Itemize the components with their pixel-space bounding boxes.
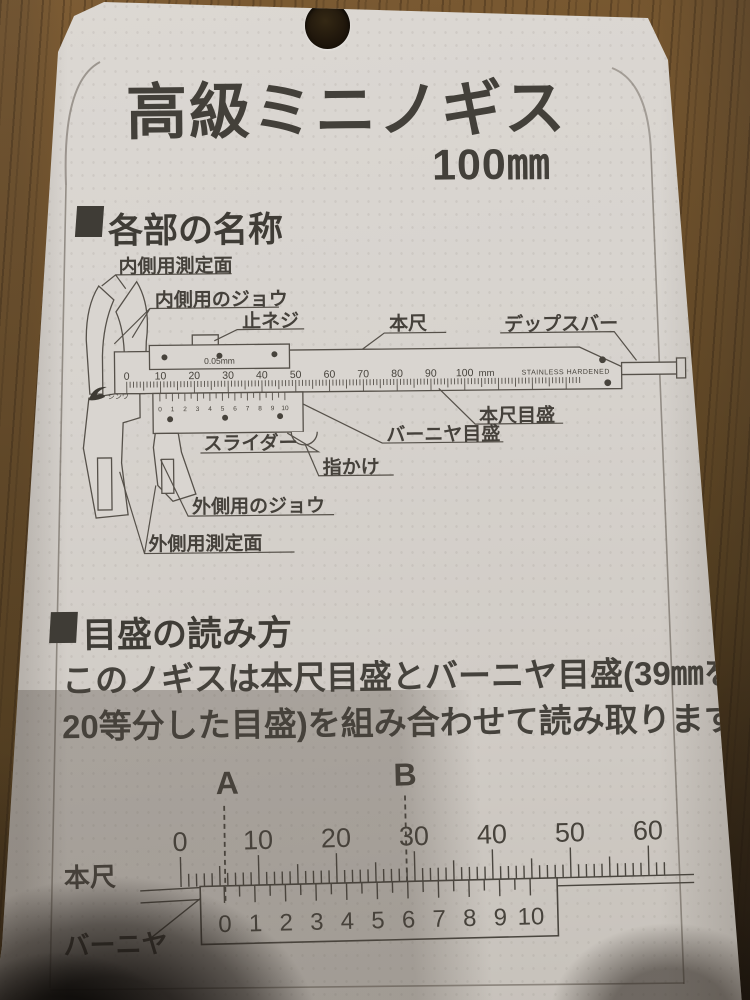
label-vernier-scale-bottom: バーニヤ xyxy=(63,923,168,963)
svg-text:8: 8 xyxy=(258,405,262,412)
depth-bar xyxy=(622,362,682,375)
svg-text:30: 30 xyxy=(222,370,234,382)
svg-text:0: 0 xyxy=(158,406,162,413)
label-slider: スライダー xyxy=(203,428,298,456)
svg-text:10: 10 xyxy=(281,405,289,412)
inner-jaw-fixed xyxy=(86,286,115,394)
svg-text:60: 60 xyxy=(633,815,664,846)
reading-body-line2: 20等分した目盛)を組み合わせて読み取ります。 xyxy=(62,692,750,749)
label-main-scale: 本尺 xyxy=(63,857,116,895)
label-inner-face: 内側用測定面 xyxy=(118,251,232,279)
hang-hole xyxy=(305,2,350,49)
precision-text: 0.05mm xyxy=(204,356,235,366)
stainless-text: STAINLESS HARDENED xyxy=(522,369,610,377)
main-scale-numbers: 0102030405060 xyxy=(172,815,663,857)
svg-text:50: 50 xyxy=(555,817,586,848)
svg-text:10: 10 xyxy=(243,825,274,856)
svg-text:1: 1 xyxy=(249,910,263,937)
svg-text:4: 4 xyxy=(208,406,212,413)
marker-b: B xyxy=(393,756,417,793)
svg-text:9: 9 xyxy=(271,405,275,412)
label-finger-rest: 指かけ xyxy=(322,452,379,480)
vernier-scale-bottom: 012345678910 xyxy=(217,878,544,938)
svg-text:6: 6 xyxy=(233,406,237,413)
label-outer-face: 外側用測定面 xyxy=(148,528,262,556)
svg-text:40: 40 xyxy=(256,369,268,381)
svg-text:60: 60 xyxy=(324,369,336,381)
depth-bar-tip xyxy=(676,358,685,378)
svg-text:7: 7 xyxy=(246,405,250,412)
svg-text:9: 9 xyxy=(493,904,507,931)
svg-text:100: 100 xyxy=(456,367,474,379)
svg-text:90: 90 xyxy=(425,368,437,380)
package-card: 高級ミニノギス 100㎜ 各部の名称 xyxy=(0,0,750,1000)
svg-text:2: 2 xyxy=(279,909,293,936)
svg-text:50: 50 xyxy=(290,369,302,381)
scale-reading-diagram: A B 0102030405060 012345678910 本 xyxy=(57,750,713,1000)
svg-text:6: 6 xyxy=(402,906,416,933)
section-bullet xyxy=(49,612,78,643)
svg-text:0: 0 xyxy=(172,827,188,857)
section-bullet xyxy=(75,206,104,237)
label-depth-bar: デップスバー xyxy=(504,309,618,337)
label-outer-jaw: 外側用のジョウ xyxy=(192,491,325,519)
svg-text:70: 70 xyxy=(357,368,369,380)
svg-text:2: 2 xyxy=(183,406,187,413)
svg-text:10: 10 xyxy=(155,370,167,382)
svg-text:30: 30 xyxy=(399,821,430,852)
svg-text:10: 10 xyxy=(517,903,544,931)
label-vernier-scale: バーニヤ目盛 xyxy=(386,419,500,447)
marker-a: A xyxy=(215,765,239,802)
svg-text:5: 5 xyxy=(371,907,385,934)
svg-text:8: 8 xyxy=(463,905,477,932)
svg-text:3: 3 xyxy=(196,406,200,413)
svg-text:4: 4 xyxy=(340,908,354,935)
outer-jaw-movable xyxy=(153,433,196,501)
reading-section-heading: 目盛の読み方 xyxy=(82,605,293,659)
svg-text:0: 0 xyxy=(218,911,232,938)
svg-text:3: 3 xyxy=(310,909,324,936)
svg-text:20: 20 xyxy=(188,370,200,382)
product-title: 高級ミニノギス xyxy=(126,57,627,151)
label-beam: 本尺 xyxy=(389,309,427,336)
unit-text: mm xyxy=(479,368,495,379)
svg-text:7: 7 xyxy=(432,906,446,933)
svg-text:80: 80 xyxy=(391,368,403,380)
photo-scene: 高級ミニノギス 100㎜ 各部の名称 xyxy=(0,0,750,1000)
svg-text:1: 1 xyxy=(171,406,175,413)
svg-text:5: 5 xyxy=(221,406,225,413)
svg-text:0: 0 xyxy=(124,371,130,383)
svg-text:20: 20 xyxy=(321,823,352,854)
caliper-parts-diagram: シンワ 0.05mm mm STAINLESS HARDENED 0102030… xyxy=(73,242,706,574)
svg-text:40: 40 xyxy=(477,819,508,850)
reading-drawing: A B 0102030405060 012345678910 xyxy=(57,750,713,1000)
label-lock-screw: 止ネジ xyxy=(242,306,299,334)
product-size: 100㎜ xyxy=(432,129,551,192)
svg-text:シンワ: シンワ xyxy=(108,393,129,401)
